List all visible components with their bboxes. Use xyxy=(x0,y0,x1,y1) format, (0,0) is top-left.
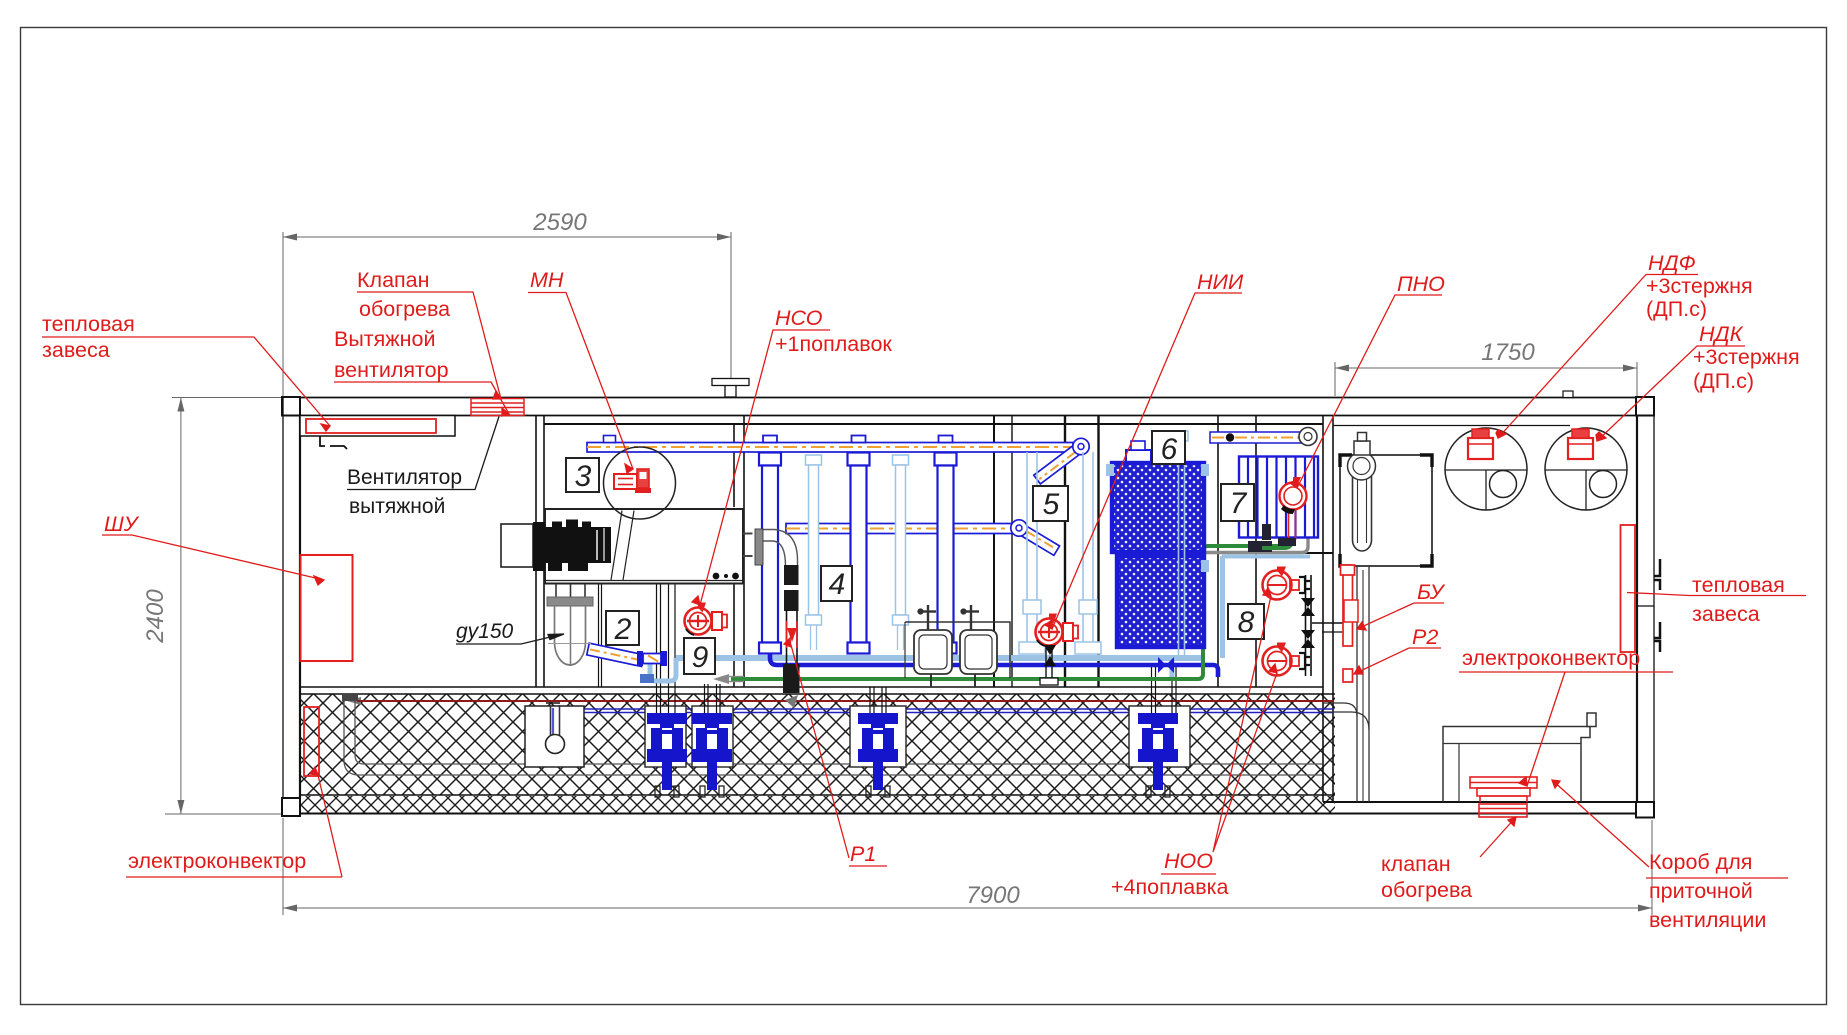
svg-text:тепловая: тепловая xyxy=(1692,573,1785,597)
svg-text:7900: 7900 xyxy=(966,882,1020,909)
svg-text:+3стержня: +3стержня xyxy=(1646,274,1753,298)
svg-text:+1поплавок: +1поплавок xyxy=(775,332,892,356)
svg-text:БУ: БУ xyxy=(1417,580,1446,604)
svg-text:НИИ: НИИ xyxy=(1197,270,1244,294)
svg-text:НДФ: НДФ xyxy=(1648,251,1696,275)
svg-text:9: 9 xyxy=(692,641,709,674)
svg-text:Р1: Р1 xyxy=(850,842,876,866)
svg-text:2590: 2590 xyxy=(532,209,587,236)
svg-text:завеса: завеса xyxy=(42,338,110,362)
svg-text:(ДП.с): (ДП.с) xyxy=(1693,369,1754,393)
svg-text:+4поплавка: +4поплавка xyxy=(1111,875,1229,899)
svg-text:МН: МН xyxy=(530,268,564,292)
svg-text:вентиляции: вентиляции xyxy=(1649,908,1766,932)
svg-text:Короб для: Короб для xyxy=(1649,850,1752,874)
svg-text:Клапан: Клапан xyxy=(357,268,430,292)
svg-text:обогрева: обогрева xyxy=(359,297,450,321)
svg-text:вытяжной: вытяжной xyxy=(349,495,445,518)
svg-text:Вентилятор: Вентилятор xyxy=(347,466,462,489)
svg-text:(ДП.с): (ДП.с) xyxy=(1646,297,1707,321)
svg-text:тепловая: тепловая xyxy=(42,312,135,336)
svg-text:6: 6 xyxy=(1161,433,1178,466)
svg-text:8: 8 xyxy=(1238,606,1255,639)
svg-text:4: 4 xyxy=(829,568,846,601)
svg-text:2400: 2400 xyxy=(142,589,169,644)
svg-text:НДК: НДК xyxy=(1699,322,1744,346)
svg-text:НСО: НСО xyxy=(775,306,823,330)
svg-text:обогрева: обогрева xyxy=(1381,878,1472,902)
svg-text:завеса: завеса xyxy=(1692,602,1760,626)
svg-text:электроконвектор: электроконвектор xyxy=(1462,646,1640,670)
svg-text:2: 2 xyxy=(614,613,632,646)
svg-text:ШУ: ШУ xyxy=(104,512,140,536)
svg-text:вентилятор: вентилятор xyxy=(334,358,449,382)
svg-text:клапан: клапан xyxy=(1381,852,1451,876)
svg-text:3: 3 xyxy=(575,460,592,493)
svg-text:+3стержня: +3стержня xyxy=(1693,345,1800,369)
svg-text:5: 5 xyxy=(1043,488,1060,521)
svg-text:электроконвектор: электроконвектор xyxy=(128,849,306,873)
svg-text:gy150: gy150 xyxy=(456,620,514,643)
svg-text:Вытяжной: Вытяжной xyxy=(334,327,436,351)
svg-text:Р2: Р2 xyxy=(1412,625,1438,649)
svg-text:НОО: НОО xyxy=(1164,849,1213,873)
svg-text:ПНО: ПНО xyxy=(1397,272,1445,296)
svg-text:1750: 1750 xyxy=(1481,339,1535,366)
svg-text:приточной: приточной xyxy=(1649,879,1753,903)
svg-text:7: 7 xyxy=(1230,487,1248,520)
